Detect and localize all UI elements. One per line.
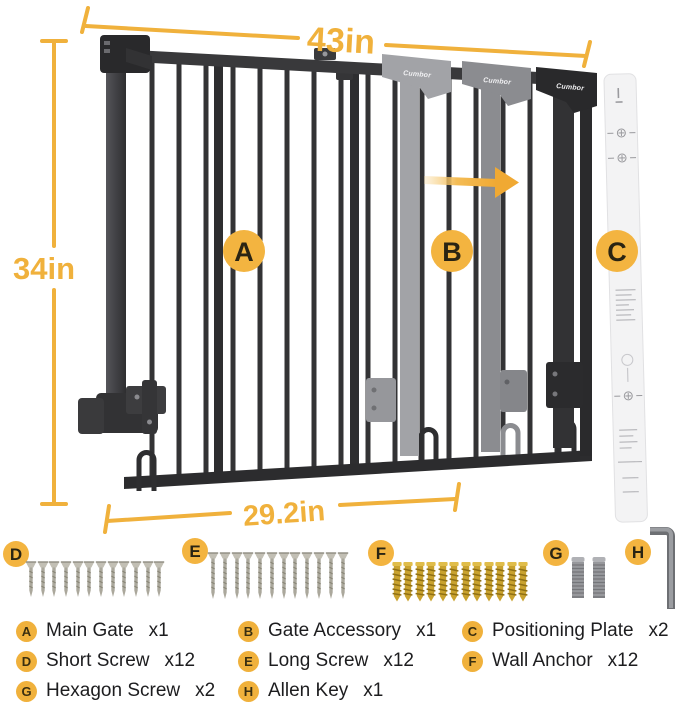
part-qty: x12: [383, 650, 414, 672]
part-key-badge: D: [16, 651, 37, 672]
gate-illustration: Cumbor Cumbor Cumbor 43in 34in: [0, 0, 679, 612]
part-key-badge: A: [16, 621, 37, 642]
product-diagram-page: Cumbor Cumbor Cumbor 43in 34in: [0, 0, 679, 709]
door-frame-bar: [214, 62, 223, 481]
part-label-D: D: [10, 545, 22, 564]
part-name: Allen Key: [268, 680, 348, 702]
part-qty: x12: [608, 650, 639, 672]
part-label-G: G: [549, 544, 562, 563]
part-label-B: B: [431, 230, 473, 272]
part-label-C: C: [596, 230, 638, 272]
wall-anchors-group: F: [368, 540, 528, 602]
width-dimension-label: 43in: [306, 20, 376, 62]
door-width-dimension-label: 29.2in: [242, 495, 326, 533]
height-dimension-label: 34in: [13, 251, 75, 286]
part-name: Wall Anchor: [492, 650, 593, 672]
part-key-badge: G: [16, 681, 37, 702]
part-label-H: H: [632, 543, 644, 562]
short-screws-group: D: [3, 541, 164, 597]
legend-item-allen-key: H Allen Key x1: [238, 680, 462, 702]
part-qty: x1: [363, 680, 383, 702]
part-name: Main Gate: [46, 620, 134, 642]
positioning-plate: [604, 74, 648, 523]
part-qty: x12: [164, 650, 195, 672]
main-gate: [78, 35, 594, 491]
allen-key-icon: [650, 531, 671, 609]
legend-item-gate-accessory: B Gate Accessory x1: [238, 620, 462, 642]
part-label-F: F: [376, 544, 386, 563]
svg-text:A: A: [234, 237, 254, 267]
part-label-A: A: [223, 230, 265, 272]
part-name: Short Screw: [46, 650, 149, 672]
legend-item-positioning-plate: C Positioning Plate x2: [462, 620, 671, 642]
part-key-badge: H: [238, 681, 259, 702]
legend-item-short-screw: D Short Screw x12: [16, 650, 238, 672]
part-qty: x1: [416, 620, 436, 642]
legend-item-hexagon-screw: G Hexagon Screw x2: [16, 680, 238, 702]
parts-legend: A Main Gate x1 B Gate Accessory x1 C Pos…: [16, 616, 671, 706]
long-screws-group: E: [182, 538, 348, 599]
legend-item-main-gate: A Main Gate x1: [16, 620, 238, 642]
gate-accessory: Cumbor: [536, 67, 597, 456]
part-name: Long Screw: [268, 650, 368, 672]
part-qty: x1: [149, 620, 169, 642]
part-name: Hexagon Screw: [46, 680, 180, 702]
allen-key-group: H: [625, 530, 671, 610]
part-qty: x2: [195, 680, 215, 702]
part-key-badge: F: [462, 651, 483, 672]
svg-text:B: B: [442, 237, 462, 267]
legend-item-wall-anchor: F Wall Anchor x12: [462, 650, 671, 672]
legend-item-long-screw: E Long Screw x12: [238, 650, 462, 672]
door-frame-bar: [350, 69, 359, 475]
gate-accessory-ghost-2: Cumbor: [462, 61, 531, 452]
part-key-badge: B: [238, 621, 259, 642]
part-name: Positioning Plate: [492, 620, 634, 642]
svg-text:C: C: [607, 237, 627, 267]
part-label-E: E: [189, 542, 200, 561]
hexagon-screws-group: G: [543, 540, 606, 598]
part-key-badge: C: [462, 621, 483, 642]
part-qty: x2: [649, 620, 669, 642]
part-key-badge: E: [238, 651, 259, 672]
part-name: Gate Accessory: [268, 620, 401, 642]
